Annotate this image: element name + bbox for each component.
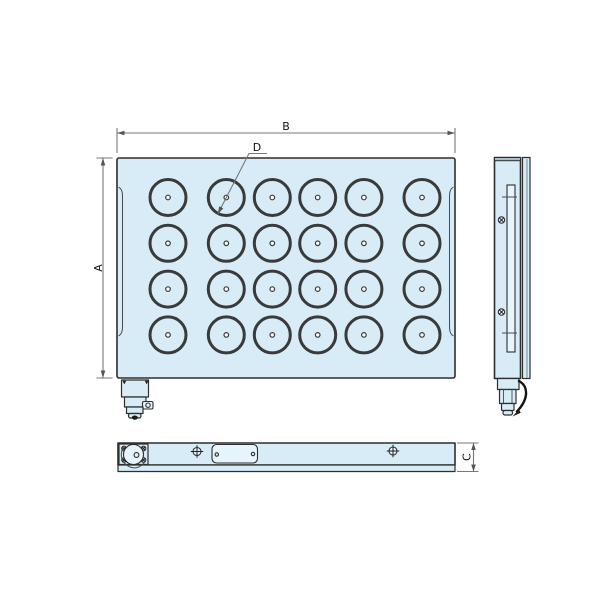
dim-label-c: C xyxy=(461,453,474,461)
pole-center-dot xyxy=(166,195,171,200)
dimension-c: C xyxy=(457,443,479,472)
side-screw xyxy=(498,217,504,223)
pole-center-dot xyxy=(362,195,367,200)
pole-center-dot xyxy=(420,287,425,292)
front-connector-block xyxy=(122,380,154,420)
pole-center-dot xyxy=(420,241,425,246)
bottom-face-plate-edge xyxy=(118,465,455,472)
dim-label-a: A xyxy=(92,264,105,272)
pole-center-dot xyxy=(270,333,275,338)
side-face-plate-edge xyxy=(523,158,531,379)
technical-drawing-canvas: A B D xyxy=(0,0,600,600)
pole-center-dot xyxy=(270,241,275,246)
pole-center-dot xyxy=(270,287,275,292)
cable-gland-nut xyxy=(503,411,513,416)
side-tab-hole xyxy=(146,403,150,407)
connector-pin xyxy=(134,453,139,458)
side-screw xyxy=(498,309,504,315)
pole-center-dot xyxy=(362,333,367,338)
pole-center-dot xyxy=(315,333,320,338)
side-view xyxy=(495,158,531,417)
connector-housing xyxy=(122,380,149,397)
front-view: A B D xyxy=(92,120,455,420)
pole-center-dot xyxy=(420,195,425,200)
pole-center-dot xyxy=(166,241,171,246)
side-internal-slot xyxy=(507,185,515,352)
cable-gland-body xyxy=(127,407,144,414)
pole-center-dot xyxy=(362,287,367,292)
connector-boss xyxy=(124,445,144,465)
bottom-view: C xyxy=(118,443,479,472)
dimension-a: A xyxy=(92,158,113,378)
pole-center-dot xyxy=(166,287,171,292)
bottom-body xyxy=(118,443,455,465)
pole-center-dot xyxy=(166,333,171,338)
pole-center-dot xyxy=(224,241,229,246)
nameplate-screw xyxy=(251,452,254,455)
connector-housing xyxy=(498,379,520,390)
pole-center-dot xyxy=(270,195,275,200)
dimension-b: B xyxy=(117,120,455,153)
technical-drawing: A B D xyxy=(0,0,600,600)
pole-center-dot xyxy=(315,195,320,200)
cable-gland-body xyxy=(502,404,515,411)
pole-center-dot xyxy=(224,333,229,338)
pole-center-dot xyxy=(315,241,320,246)
dim-label-b: B xyxy=(282,120,290,133)
side-top-cap xyxy=(495,158,521,161)
pole-center-dot xyxy=(224,287,229,292)
pole-center-dot xyxy=(362,241,367,246)
dim-label-d: D xyxy=(253,141,261,154)
cable-exit xyxy=(132,416,138,420)
pole-center-dot xyxy=(315,287,320,292)
nameplate-screw xyxy=(215,453,218,456)
side-connector-block xyxy=(498,379,527,417)
pole-center-dot xyxy=(420,333,425,338)
connector-step xyxy=(500,390,517,404)
